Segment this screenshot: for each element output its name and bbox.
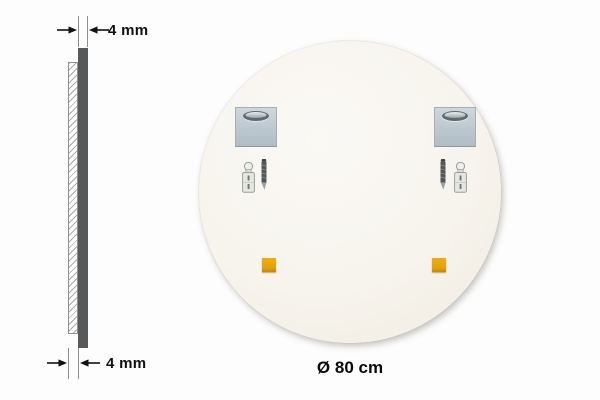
- product-diagram: 4 mm 4 mm: [0, 0, 600, 400]
- dimension-arrow-right-icon: [47, 358, 67, 368]
- thickness-dimension-label-bottom: 4 mm: [106, 355, 146, 372]
- extension-line: [78, 16, 79, 47]
- screw-icon: [261, 159, 267, 190]
- extension-line: [68, 348, 69, 379]
- keyhole-slot-highlight: [246, 112, 267, 118]
- mounting-plate-icon: [434, 107, 476, 147]
- diameter-dimension-label: Ø 80 cm: [317, 358, 383, 378]
- wall-plug-icon: [454, 162, 467, 193]
- extension-line: [78, 348, 79, 379]
- wall-plug-icon: [242, 162, 255, 193]
- extension-line: [87, 16, 88, 47]
- dimension-arrow-left-icon: [80, 358, 100, 368]
- keyhole-slot-icon: [442, 111, 468, 121]
- mounting-plate-icon: [235, 107, 277, 147]
- mirror-backing-hatched-section: [68, 62, 78, 334]
- dimension-arrow-right-icon: [57, 25, 77, 35]
- keyhole-slot-highlight: [445, 112, 466, 118]
- dimension-arrow-left-icon: [89, 25, 109, 35]
- adhesive-pad-icon: [262, 258, 276, 272]
- screw-icon: [440, 159, 446, 190]
- mirror-glass-side-view: [78, 48, 88, 348]
- thickness-dimension-label-top: 4 mm: [108, 22, 148, 39]
- keyhole-slot-icon: [243, 111, 269, 121]
- adhesive-pad-icon: [432, 258, 446, 272]
